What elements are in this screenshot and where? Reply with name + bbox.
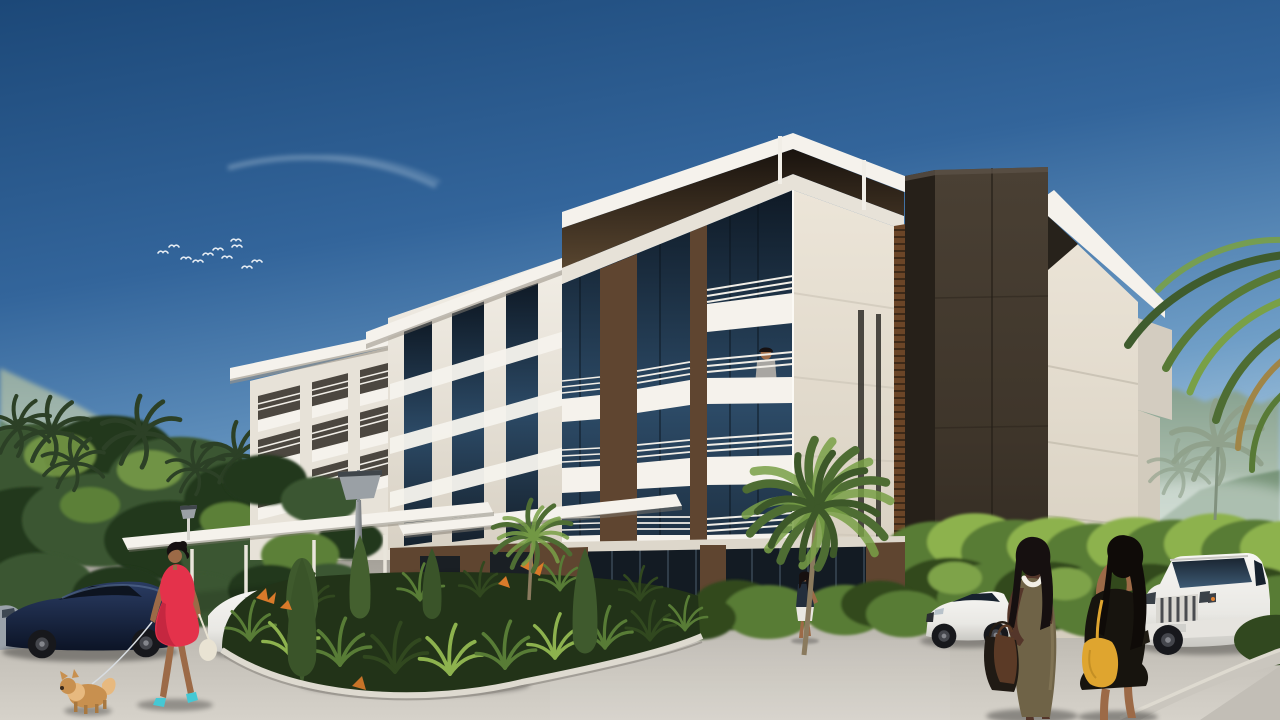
white-skirt: [796, 606, 814, 621]
wheel: [932, 624, 957, 649]
scene-canvas: Sunlit architectural rendering of a mode…: [0, 0, 1280, 720]
cream-handbag: [199, 639, 217, 661]
terrace-post: [778, 136, 782, 184]
dog-head: [60, 678, 76, 694]
yellow-bag: [1082, 638, 1118, 688]
signal-orange: [1211, 597, 1215, 601]
dog-muzzle: [60, 686, 64, 690]
wheel: [1153, 625, 1183, 655]
architectural-rendering: Sunlit architectural rendering of a mode…: [0, 0, 1280, 720]
wood-slat-strip: [894, 224, 906, 560]
wheel: [28, 630, 57, 659]
terrace-post: [862, 160, 866, 210]
